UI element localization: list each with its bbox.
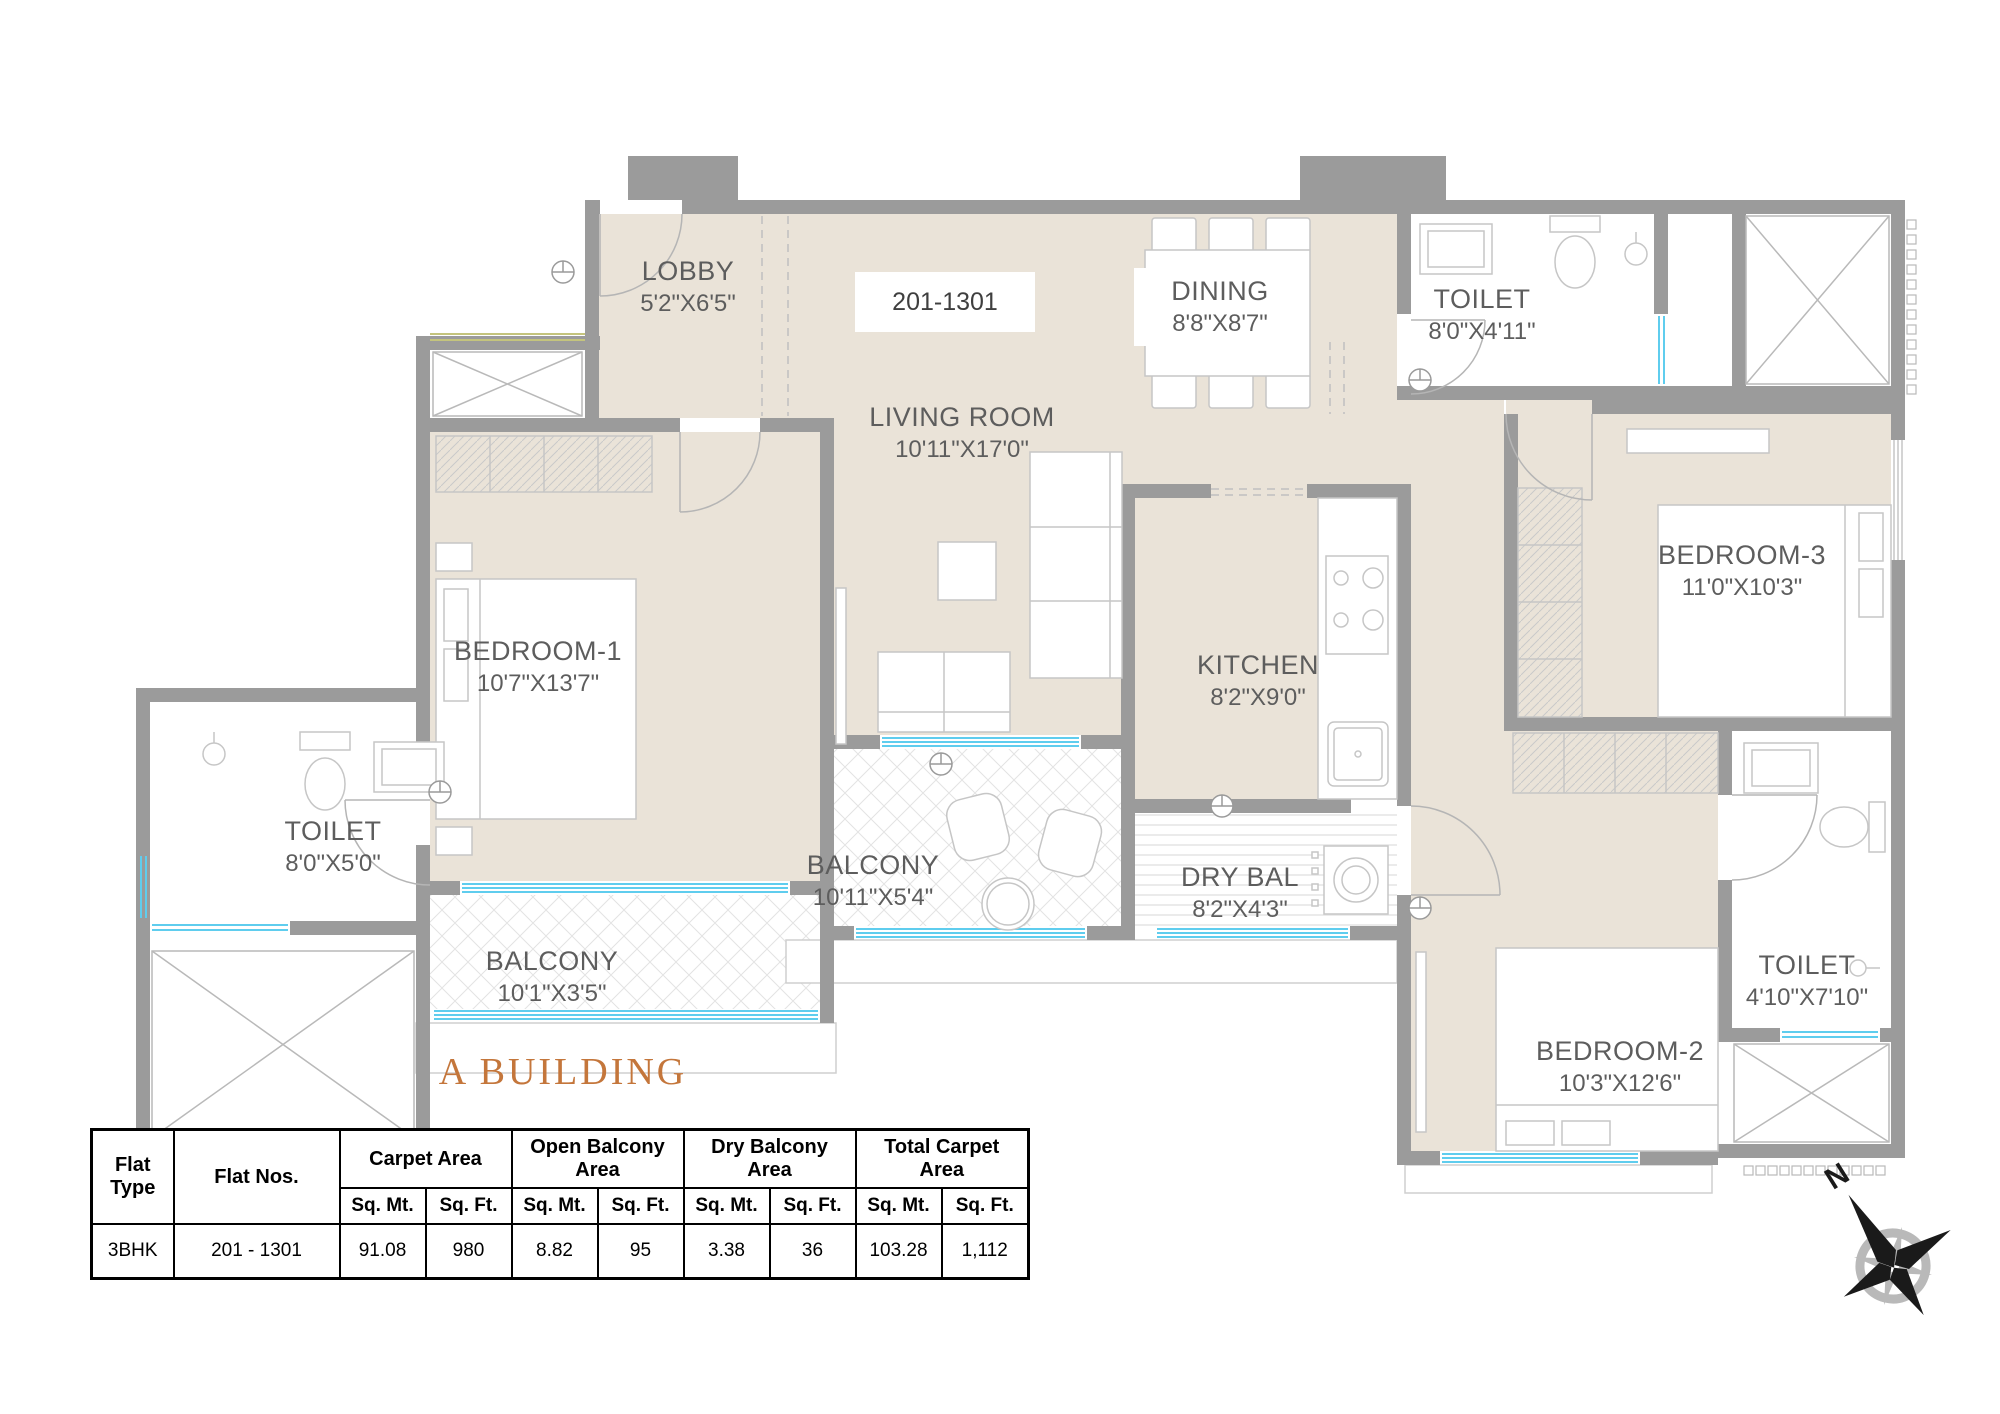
room-label-toilet-left: TOILET 8'0"X5'0" xyxy=(284,816,381,878)
compass-north-text: N xyxy=(1819,1157,1855,1196)
stove-icon xyxy=(1326,556,1388,654)
room-label-toilet-right: TOILET 4'10"X7'10" xyxy=(1746,950,1868,1012)
bedroom2-wardrobe xyxy=(1513,733,1718,793)
toilet-left-fixtures xyxy=(203,732,444,810)
cell-open-sq-ft: 95 xyxy=(598,1224,684,1279)
toilet-right-fixtures xyxy=(1744,743,1885,976)
area-table: Flat Type Flat Nos. Carpet Area Open Bal… xyxy=(90,1128,1030,1280)
room-label-lobby: LOBBY 5'2"X6'5" xyxy=(640,256,736,318)
wc-tank xyxy=(300,732,350,750)
kitchen-sink-icon xyxy=(1328,722,1388,786)
col-header-carpet-area: Carpet Area xyxy=(340,1130,512,1189)
room-label-dry-balcony: DRY BAL 8'2"X4'3" xyxy=(1181,862,1299,924)
wc-icon xyxy=(305,758,345,810)
shower-icon xyxy=(1625,243,1647,265)
table-row: 3BHK 201 - 1301 91.08 980 8.82 95 3.38 3… xyxy=(92,1224,1029,1279)
subheader-sq-mt: Sq. Mt. xyxy=(512,1188,598,1224)
cell-flat-nos: 201 - 1301 xyxy=(174,1224,340,1279)
compass-icon: N xyxy=(1779,1127,1981,1346)
room-label-bedroom2: BEDROOM-2 10'3"X12'6" xyxy=(1536,1036,1704,1098)
room-label-balcony-main: BALCONY 10'11"X5'4" xyxy=(807,850,940,912)
cell-dry-sq-ft: 36 xyxy=(770,1224,856,1279)
room-label-toilet-top: TOILET 8'0"X4'11" xyxy=(1428,284,1535,346)
toilet-top-fixtures xyxy=(1420,216,1647,288)
subheader-sq-mt: Sq. Mt. xyxy=(340,1188,426,1224)
washing-machine-icon xyxy=(1312,846,1388,914)
room-label-kitchen: KITCHEN 8'2"X9'0" xyxy=(1197,650,1319,712)
subheader-sq-mt: Sq. Mt. xyxy=(856,1188,942,1224)
room-label-bedroom1: BEDROOM-1 10'7"X13'7" xyxy=(454,636,622,698)
bedroom3-bed xyxy=(1658,505,1891,717)
cell-flat-type: 3BHK xyxy=(92,1224,174,1279)
subheader-sq-ft: Sq. Ft. xyxy=(598,1188,684,1224)
bedroom3-wardrobe xyxy=(1518,488,1582,717)
bedroom1-bed xyxy=(436,543,636,855)
building-title: A BUILDING xyxy=(348,1050,778,1094)
subheader-sq-mt: Sq. Mt. xyxy=(684,1188,770,1224)
col-header-total-carpet-area: Total Carpet Area xyxy=(856,1130,1029,1189)
tv-unit xyxy=(836,588,846,744)
wc-tank xyxy=(1869,802,1885,852)
col-header-open-balcony-area: Open Balcony Area xyxy=(512,1130,684,1189)
bedroom3-window xyxy=(1891,440,1905,560)
bedroom3-dresser xyxy=(1627,429,1769,453)
bedroom1-wardrobe xyxy=(436,436,652,492)
col-header-dry-balcony-area: Dry Balcony Area xyxy=(684,1130,856,1189)
cell-carpet-sq-ft: 980 xyxy=(426,1224,512,1279)
room-label-dining: DINING 8'8"X8'7" xyxy=(1134,268,1306,346)
floor-plan-canvas: N LOBBY 5'2"X6'5" LIVING ROOM 10'11"X17'… xyxy=(0,0,2000,1414)
subheader-sq-ft: Sq. Ft. xyxy=(770,1188,856,1224)
cell-dry-sq-mt: 3.38 xyxy=(684,1224,770,1279)
wc-tank xyxy=(1550,216,1600,232)
wc-icon xyxy=(1820,807,1868,847)
wc-icon xyxy=(1555,236,1595,288)
cell-total-sq-ft: 1,112 xyxy=(942,1224,1029,1279)
shower-icon xyxy=(203,743,225,765)
room-label-balcony-left: BALCONY 10'1"X3'5" xyxy=(486,946,619,1008)
subheader-sq-ft: Sq. Ft. xyxy=(942,1188,1029,1224)
unit-number-label: 201-1301 xyxy=(855,272,1035,332)
col-header-flat-nos: Flat Nos. xyxy=(174,1130,340,1225)
col-header-flat-type: Flat Type xyxy=(92,1130,174,1225)
room-label-bedroom3: BEDROOM-3 11'0"X10'3" xyxy=(1658,540,1826,602)
cell-open-sq-mt: 8.82 xyxy=(512,1224,598,1279)
cell-total-sq-mt: 103.28 xyxy=(856,1224,942,1279)
bedroom2-tv-unit xyxy=(1416,952,1426,1132)
cell-carpet-sq-mt: 91.08 xyxy=(340,1224,426,1279)
subheader-sq-ft: Sq. Ft. xyxy=(426,1188,512,1224)
room-label-living-room: LIVING ROOM 10'11"X17'0" xyxy=(869,402,1055,464)
